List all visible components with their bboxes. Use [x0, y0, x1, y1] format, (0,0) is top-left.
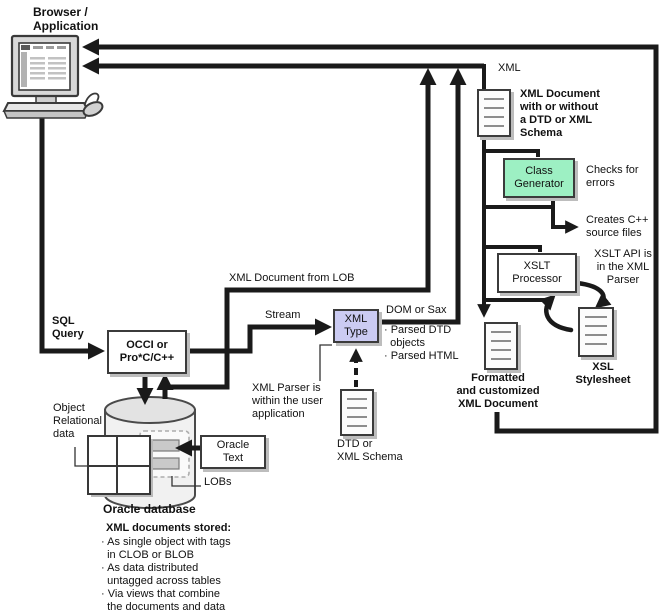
formatted-document-label: Formatted and customized XML Document [450, 372, 546, 411]
oracle-database-label: Oracle database [103, 503, 196, 516]
stream-arrow [186, 327, 326, 351]
stream-label: Stream [265, 309, 300, 322]
occi-box: OCCI or Pro*C/C++ [107, 330, 187, 374]
xsl-stylesheet-icon [578, 307, 614, 357]
dom-or-sax-arrow [379, 74, 458, 322]
browser-application-label: Browser / Application [33, 5, 98, 33]
document-lines [484, 98, 504, 130]
xsl-to-xslt-curved-arrow [546, 298, 571, 330]
class-generator-box: Class Generator [503, 158, 575, 198]
sql-query-label: SQL Query [52, 315, 84, 341]
xml-flow-label: XML [498, 62, 521, 75]
document-lines [585, 316, 607, 350]
table-icon [88, 436, 153, 497]
xml-type-box: XML Type [333, 309, 379, 343]
xml-parser-note-leader [320, 345, 332, 381]
creates-cpp-arrow [553, 198, 574, 227]
xslt-processor-box: XSLT Processor [497, 253, 577, 293]
xml-document-icon [477, 89, 511, 137]
storage-item: · As single object with tags in CLOB or … [101, 536, 231, 561]
dom-or-sax-label: DOM or Sax [386, 304, 447, 317]
document-lines [491, 331, 511, 363]
xml-document-note: XML Document with or without a DTD or XM… [520, 88, 600, 140]
creates-cpp-note: Creates C++ source files [586, 214, 648, 240]
storage-item: · Via views that combine the documents a… [101, 588, 225, 611]
storage-title: XML documents stored: [106, 522, 231, 535]
xml-document-from-lob-label: XML Document from LOB [229, 272, 355, 285]
storage-item: · As data distributed untagged across ta… [101, 562, 221, 587]
object-relational-data-label: Object Relational data [53, 402, 102, 441]
dtd-document-icon [340, 389, 374, 436]
xslt-api-note: XSLT API is in the XML Parser [584, 248, 662, 287]
object-data-leader [75, 447, 87, 466]
checks-for-errors-note: Checks for errors [586, 164, 639, 190]
dtd-or-schema-label: DTD or XML Schema [337, 438, 403, 464]
parsed-outputs-label: · Parsed DTD objects · Parsed HTML [384, 324, 459, 363]
lobs-label: LOBs [204, 476, 232, 489]
xml-parser-note: XML Parser is within the user applicatio… [252, 382, 323, 421]
oracle-text-box: Oracle Text [200, 435, 266, 469]
formatted-document-icon [484, 322, 518, 370]
oracle-xml-architecture-diagram: OCCI or Pro*C/C++ XML Type Class Generat… [0, 0, 665, 611]
document-lines [347, 398, 367, 429]
xsl-stylesheet-label: XSL Stylesheet [564, 361, 642, 387]
